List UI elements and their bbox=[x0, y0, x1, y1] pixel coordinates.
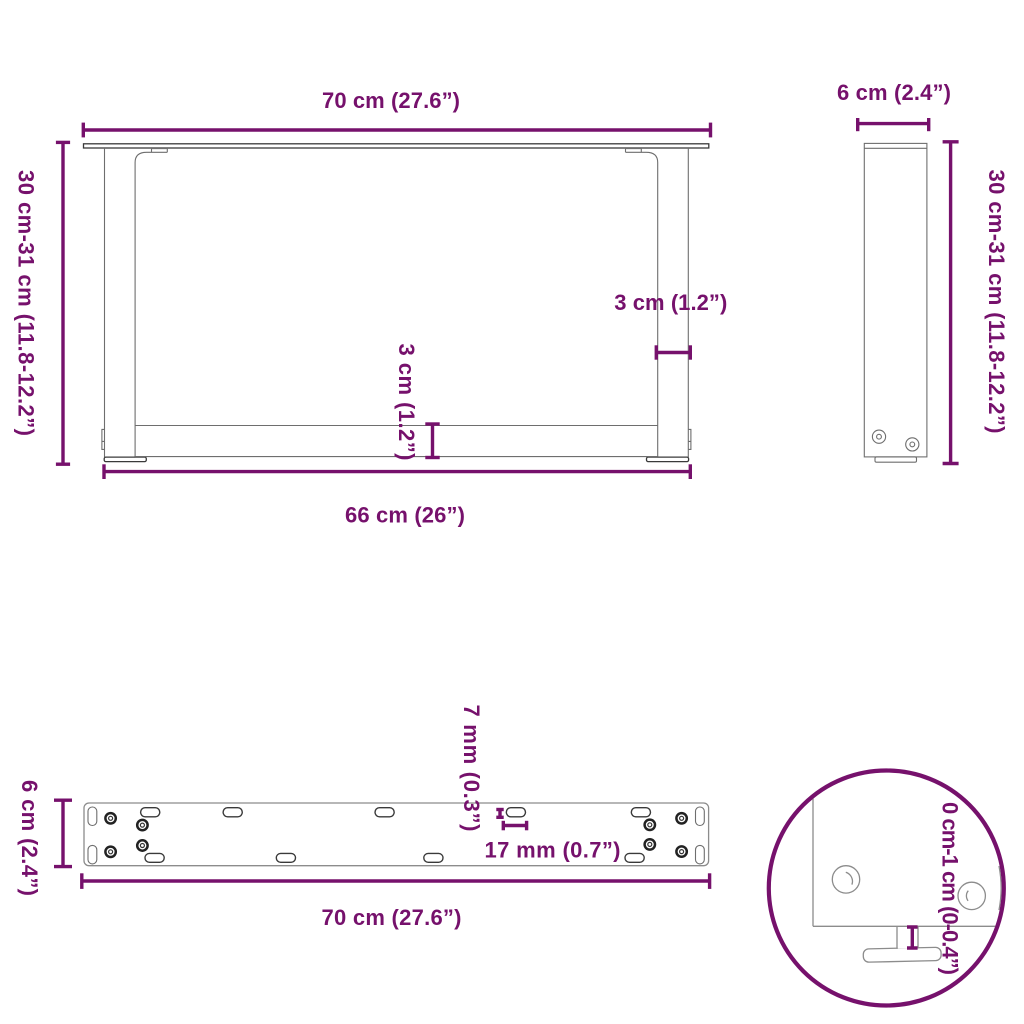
svg-text:6 cm (2.4”): 6 cm (2.4”) bbox=[837, 80, 951, 105]
svg-text:6 cm (2.4”): 6 cm (2.4”) bbox=[17, 780, 42, 896]
svg-text:70 cm (27.6”): 70 cm (27.6”) bbox=[322, 88, 460, 113]
svg-text:70 cm (27.6”): 70 cm (27.6”) bbox=[322, 905, 462, 930]
svg-text:66 cm (26”): 66 cm (26”) bbox=[345, 502, 465, 527]
svg-text:30 cm-31 cm (11.8-12.2”): 30 cm-31 cm (11.8-12.2”) bbox=[13, 170, 38, 436]
svg-text:17 mm (0.7”): 17 mm (0.7”) bbox=[485, 837, 621, 862]
svg-text:3 cm (1.2”): 3 cm (1.2”) bbox=[614, 290, 727, 315]
svg-text:0 cm-1 cm (0-0.4”): 0 cm-1 cm (0-0.4”) bbox=[938, 802, 963, 975]
svg-text:30 cm-31 cm (11.8-12.2”): 30 cm-31 cm (11.8-12.2”) bbox=[984, 170, 1009, 434]
svg-text:3 cm (1.2”): 3 cm (1.2”) bbox=[394, 344, 419, 461]
svg-text:7 mm (0.3”): 7 mm (0.3”) bbox=[459, 705, 484, 832]
